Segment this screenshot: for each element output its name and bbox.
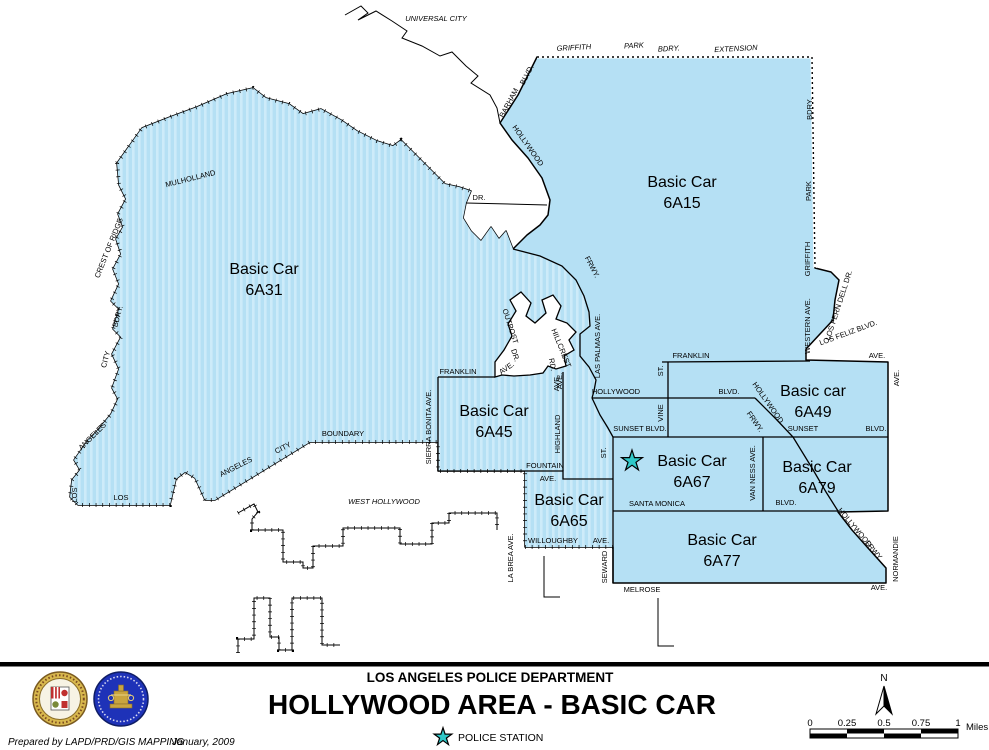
mulholland-dr-line (466, 203, 547, 205)
street-label: FRANKLIN (672, 351, 709, 360)
street-label: PARK (624, 40, 645, 50)
map-title: HOLLYWOOD AREA - BASIC CAR (268, 689, 716, 720)
street-label: FOUNTAIN (526, 461, 564, 470)
street-label: HIGHLAND (553, 414, 562, 453)
street-label: LAS PALMAS AVE. (593, 314, 602, 378)
street-label: SUNSET (788, 424, 819, 433)
lapd-seal (94, 672, 148, 726)
north-label: N (880, 673, 887, 684)
footer-separator (0, 662, 989, 667)
scale-tick: 1 (955, 718, 960, 729)
region-code: 6A79 (798, 480, 835, 497)
street-label: DR. (473, 193, 486, 202)
street-label: BLVD. (865, 424, 886, 433)
street-label: AVE. (869, 351, 886, 360)
street-label: SANTA MONICA (629, 499, 685, 508)
street-label: WILLOUGHBY (528, 536, 578, 545)
region-code: 6A45 (475, 424, 512, 441)
street-label: CITY (99, 350, 112, 369)
street-label: ST. (599, 448, 608, 459)
region-code: 6A77 (703, 553, 740, 570)
region-title: Basic car (780, 383, 846, 400)
region-code: 6A67 (673, 474, 710, 491)
lapd-basic-car-map-page: UNIVERSAL CITYGRIFFITHPARKBDRY.EXTENSION… (0, 0, 989, 750)
region-title: Basic Car (534, 492, 604, 509)
map-date-text: January, 2009 (171, 737, 235, 748)
street-label: UNIVERSAL CITY (405, 14, 468, 23)
map-canvas: UNIVERSAL CITYGRIFFITHPARKBDRY.EXTENSION… (0, 0, 989, 750)
region-code: 6A15 (663, 195, 700, 212)
region-code: 6A49 (794, 404, 831, 421)
street-label: WEST HOLLYWOOD (348, 497, 420, 506)
street-label: BDRY. (658, 43, 680, 53)
street-label: LOS (113, 493, 128, 502)
street-label: BLVD. (775, 498, 796, 507)
scale-tick: 0.5 (877, 718, 890, 729)
department-title: LOS ANGELES POLICE DEPARTMENT (367, 670, 615, 685)
legend-star-icon (434, 728, 452, 745)
street-label: AVE. (540, 474, 557, 483)
street-label: BLVD. (718, 387, 739, 396)
street-label: SUNSET BLVD. (613, 424, 667, 433)
city-of-la-seal (33, 672, 87, 726)
street-label: AVE. (552, 375, 561, 392)
street-label: AVE. (892, 370, 901, 387)
street-label: GRIFFITH (803, 242, 812, 277)
street-label: LA BREA AVE. (506, 533, 515, 582)
street-label: PARK (804, 181, 813, 201)
street-label: ST. (656, 366, 665, 377)
street-label: BDRY. (805, 98, 814, 120)
region-title: Basic Car (782, 459, 852, 476)
street-label: GRIFFITH (556, 42, 592, 53)
legend-label: POLICE STATION (458, 732, 543, 744)
scale-unit: Miles (966, 722, 988, 733)
region-title: Basic Car (657, 453, 727, 470)
street-label: HOLLYWOOD (592, 387, 641, 396)
prepared-by-text: Prepared by LAPD/PRD/GIS MAPPING (8, 737, 184, 748)
street-label: SEWARD (600, 550, 609, 583)
street-label: VAN NESS AVE. (748, 445, 757, 501)
street-label: LOS (70, 487, 79, 502)
region-code: 6A65 (550, 513, 587, 530)
north-arrow-icon: N (876, 673, 892, 714)
street-label: VINE (656, 404, 665, 422)
street-label: NORMANDIE (891, 536, 900, 582)
street-label: BOUNDARY (322, 429, 364, 438)
region-code: 6A31 (245, 282, 282, 299)
scale-tick: 0.25 (838, 718, 857, 729)
scale-tick: 0.75 (912, 718, 931, 729)
region-title: Basic Car (229, 261, 299, 278)
street-label: FRANKLIN (439, 367, 476, 376)
street-label: MELROSE (624, 585, 661, 594)
region-title: Basic Car (687, 532, 757, 549)
region-title: Basic Car (459, 403, 529, 420)
street-label: SIERRA BONITA AVE. (424, 390, 433, 465)
street-label: AVE. (871, 583, 888, 592)
scale-bar: 0 0.25 0.5 0.75 1 Miles (807, 718, 988, 738)
street-label: WESTERN AVE. (803, 298, 812, 354)
street-label: EXTENSION (714, 43, 758, 54)
scale-tick: 0 (807, 718, 812, 729)
region-title: Basic Car (647, 174, 717, 191)
street-label: AVE. (593, 536, 610, 545)
